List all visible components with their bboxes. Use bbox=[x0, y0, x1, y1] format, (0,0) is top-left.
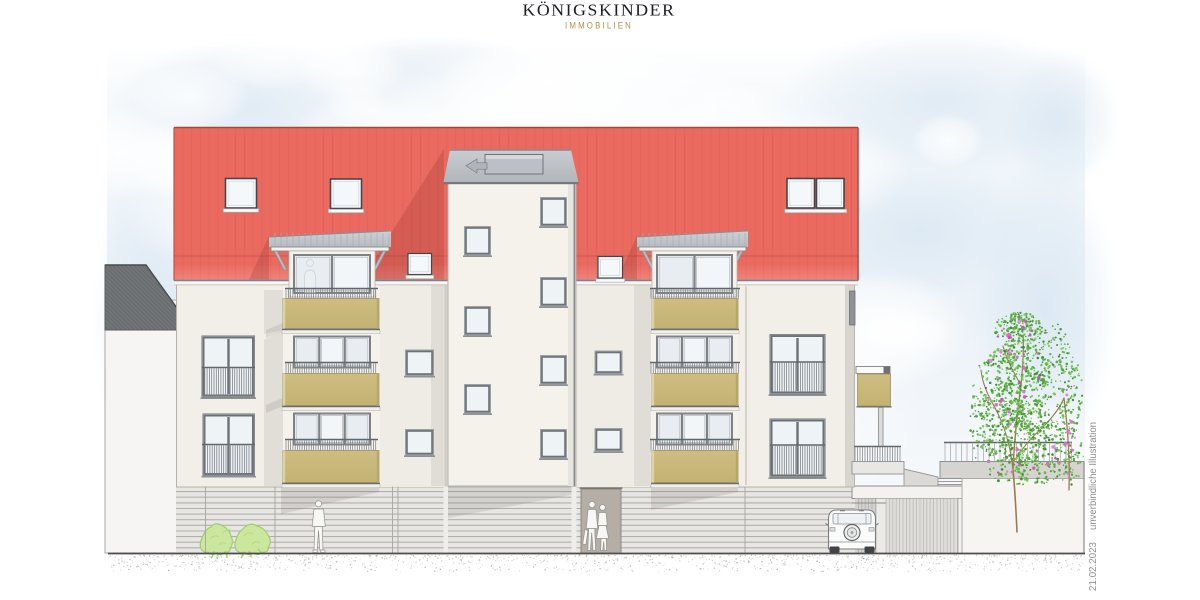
svg-text:21.02.2023: 21.02.2023 bbox=[1088, 542, 1099, 591]
svg-text:IMMOBILIEN: IMMOBILIEN bbox=[565, 21, 633, 31]
svg-text:unverbindliche Illustration: unverbindliche Illustration bbox=[1088, 422, 1099, 530]
svg-text:KÖNIGSKINDER: KÖNIGSKINDER bbox=[523, 1, 676, 20]
